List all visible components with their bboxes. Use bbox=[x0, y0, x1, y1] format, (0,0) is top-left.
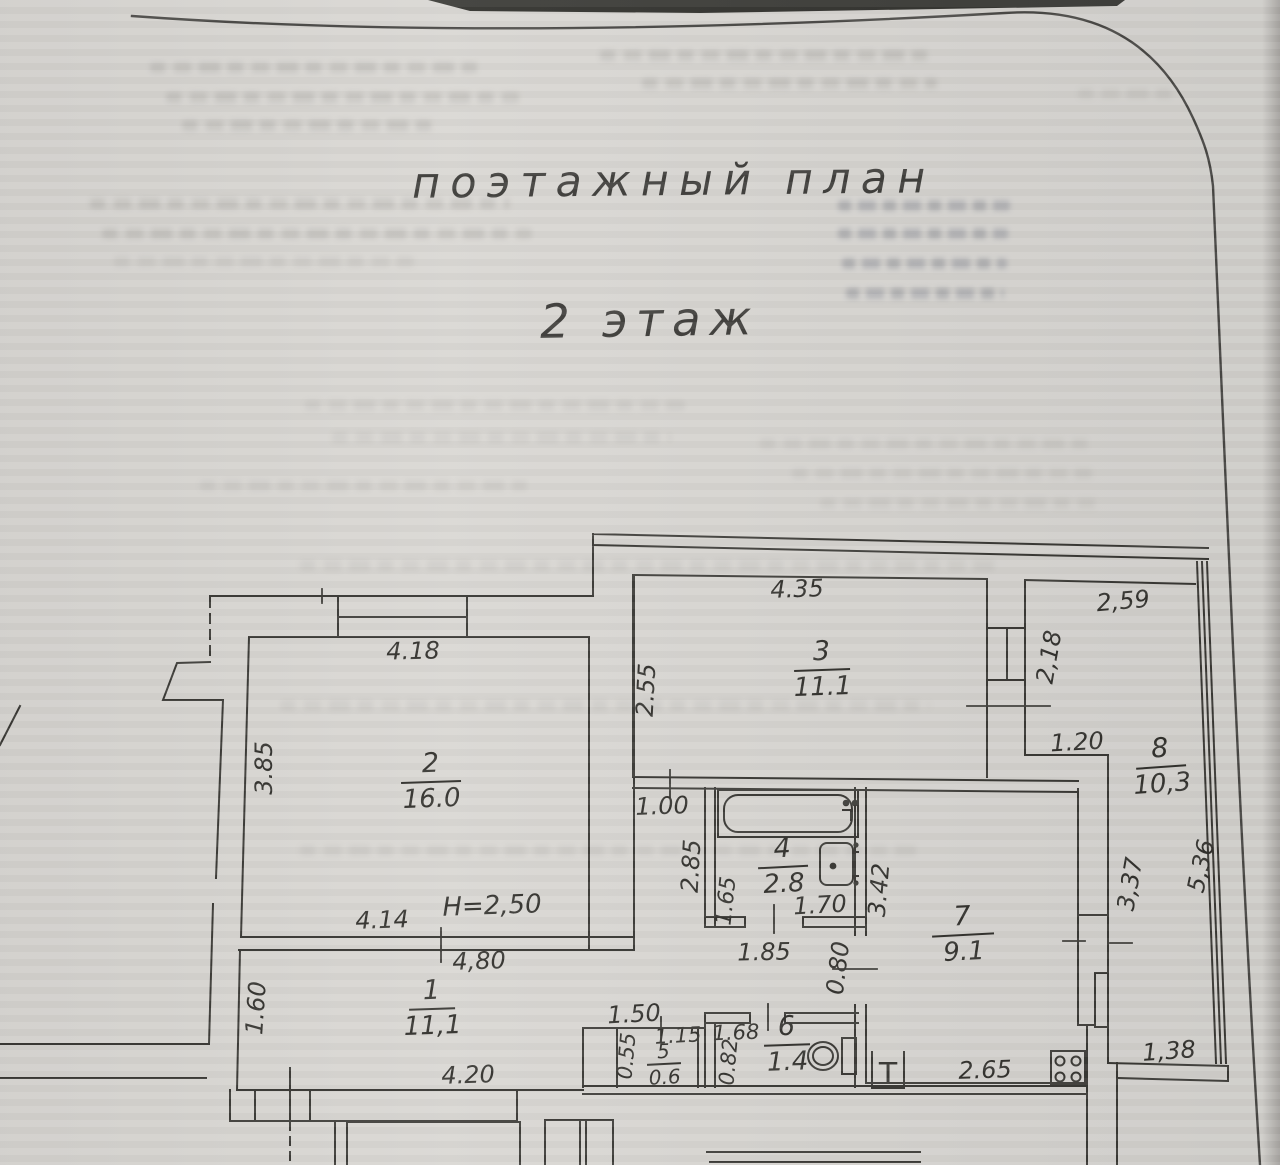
dim-label-r5-top: 1.15 bbox=[654, 1024, 702, 1047]
dim-label-r1-left: 1.60 bbox=[242, 981, 270, 1036]
dim-label-r8-step: 1.20 bbox=[1050, 729, 1105, 756]
dim-label-kitchen-wall: 3.42 bbox=[865, 862, 894, 917]
room-area: 16.0 bbox=[402, 785, 461, 813]
room-label-6: 6 1.4 bbox=[763, 1012, 811, 1076]
scanned-floor-plan-page: Т поэтажный план 2 этаж 2 16.0 3 11.1 8 … bbox=[0, 0, 1280, 1165]
dim-label-r6-left: 0.82 bbox=[717, 1038, 742, 1086]
dim-label-r3-top: 4.35 bbox=[770, 576, 824, 602]
dim-label-r2-bottom: 4.14 bbox=[355, 907, 409, 933]
room-area: 10,3 bbox=[1132, 769, 1192, 799]
room-number: 4 bbox=[773, 835, 792, 863]
sink-icon bbox=[820, 843, 858, 885]
vent-duct-letter: Т bbox=[878, 1057, 898, 1092]
dim-label-kitchen-bottom: 2.65 bbox=[958, 1057, 1012, 1083]
dim-label-r8-top: 2,59 bbox=[1095, 587, 1150, 616]
dim-label-bath-width: 1.70 bbox=[793, 892, 848, 919]
dimension-ticks bbox=[322, 589, 1132, 1041]
dim-label-bath-left: 2.85 bbox=[678, 839, 705, 894]
room-number: 8 bbox=[1150, 734, 1169, 762]
room-area: 0.6 bbox=[648, 1066, 681, 1088]
dim-label-r2-top: 4.18 bbox=[386, 639, 440, 664]
stove-icon bbox=[1051, 1051, 1085, 1085]
room-label-1: 1 11,1 bbox=[402, 976, 462, 1040]
room-area: 9.1 bbox=[943, 938, 986, 966]
dim-label-r5-left: 0.55 bbox=[615, 1032, 640, 1080]
dim-label-r1-top: 4,80 bbox=[452, 948, 506, 974]
room-label-2: 2 16.0 bbox=[400, 749, 462, 813]
room-label-8: 8 10,3 bbox=[1130, 733, 1192, 799]
page-right-edge bbox=[1262, 0, 1280, 1165]
room-area: 11,1 bbox=[403, 1012, 462, 1040]
dim-label-nook-top: 1.50 bbox=[607, 1001, 662, 1028]
page-title: поэтажный план bbox=[412, 153, 936, 208]
room-label-4: 4 2.8 bbox=[756, 834, 809, 899]
room-number: 3 bbox=[812, 638, 830, 666]
book-gutter-shadow bbox=[428, 0, 1125, 13]
room-area: 1.4 bbox=[766, 1048, 808, 1075]
room-number: 1 bbox=[422, 977, 440, 1005]
dim-label-r2-left: 3.85 bbox=[252, 741, 276, 794]
room-label-3: 3 11.1 bbox=[792, 637, 852, 701]
dim-label-loggia-bottom: 1,38 bbox=[1142, 1037, 1197, 1065]
window-room2 bbox=[338, 596, 467, 637]
dim-label-corridor: 1.00 bbox=[635, 793, 689, 819]
window-room3-loggia bbox=[987, 628, 1025, 680]
dim-label-kitchen-door: 0.80 bbox=[823, 940, 853, 996]
dim-label-r1-bottom: 4.20 bbox=[441, 1062, 495, 1088]
page-subtitle: 2 этаж bbox=[540, 291, 761, 350]
room-number: 2 bbox=[421, 750, 439, 778]
room-area: 11.1 bbox=[793, 673, 852, 701]
dim-label-height-note: H=2,50 bbox=[442, 891, 542, 920]
bathtub-icon bbox=[718, 790, 858, 837]
dim-label-r3-left: 2.55 bbox=[633, 663, 660, 718]
toilet-icon bbox=[808, 1038, 856, 1074]
room-number: 7 bbox=[953, 903, 972, 931]
window-kitchen-loggia bbox=[1095, 973, 1108, 1027]
room-label-7: 7 9.1 bbox=[930, 901, 995, 966]
dim-label-bath-door: 1.85 bbox=[737, 940, 791, 965]
dim-label-bath-inner: 1.65 bbox=[714, 875, 741, 926]
room-number: 6 bbox=[777, 1013, 795, 1041]
